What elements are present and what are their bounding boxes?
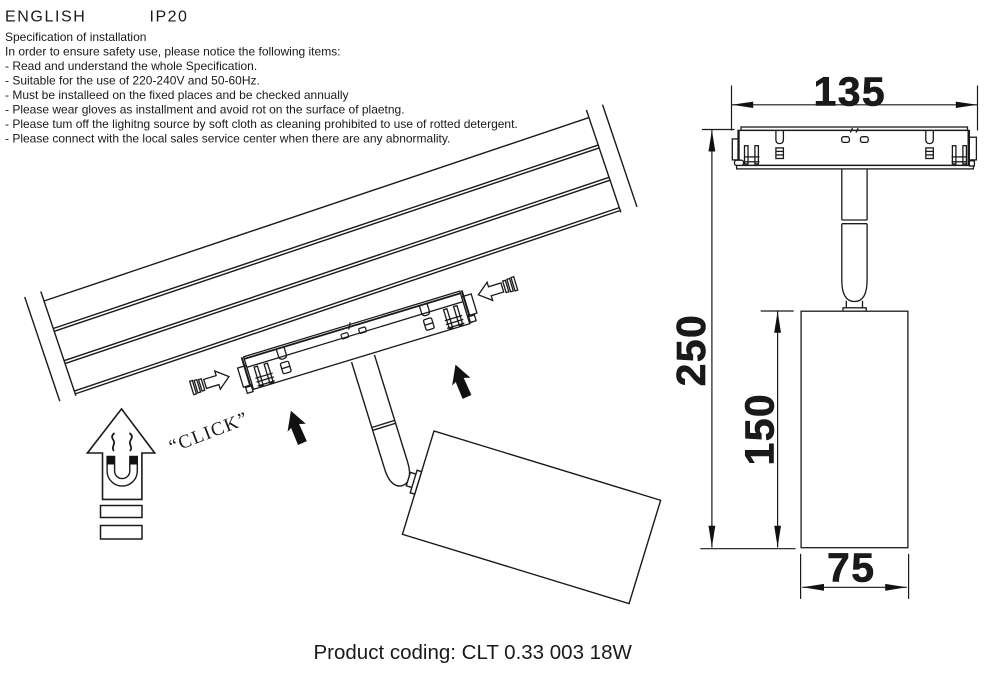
svg-text:- Read and understand the whol: - Read and understand the whole Specific… [5, 59, 257, 73]
svg-text:ENGLISH: ENGLISH [5, 8, 86, 25]
svg-text:- Must be installeed on the fi: - Must be installeed on the fixed places… [5, 88, 349, 102]
svg-text:- Please wear gloves as instal: - Please wear gloves as installment and … [5, 103, 405, 117]
svg-text:In order to ensure safety use,: In order to ensure safety use, please no… [5, 45, 341, 59]
svg-text:135: 135 [814, 69, 887, 115]
svg-text:150: 150 [736, 393, 782, 466]
svg-text:- Please tum off the lighitng: - Please tum off the lighitng source by … [5, 117, 518, 131]
svg-text:- Suitable for the use of 220-: - Suitable for the use of 220-240V and 5… [5, 74, 260, 88]
svg-text:250: 250 [668, 314, 714, 387]
svg-text:- Please connect with the loca: - Please connect with the local sales se… [5, 132, 450, 146]
svg-text:Specification of installation: Specification of installation [5, 30, 146, 44]
svg-text:Product coding: CLT 0.33 003 1: Product coding: CLT 0.33 003 18W [314, 641, 633, 664]
svg-text:75: 75 [827, 545, 875, 591]
svg-text:IP20: IP20 [150, 8, 189, 25]
